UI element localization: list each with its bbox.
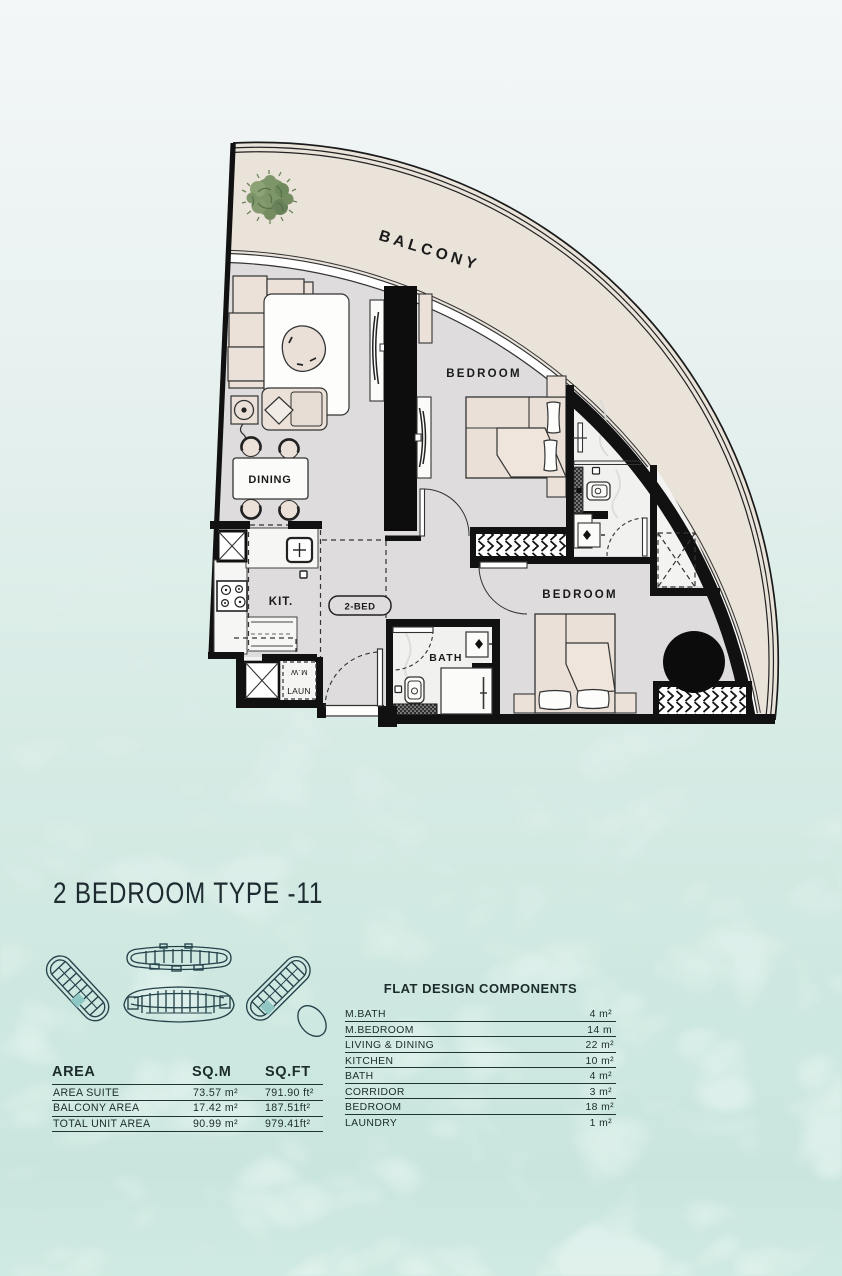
svg-text:LAUN: LAUN [287,686,310,696]
svg-text:M.W: M.W [290,668,307,677]
svg-text:BEDROOM: BEDROOM [446,368,521,380]
svg-text:BEDROOM: BEDROOM [542,589,617,601]
svg-text:DINING: DINING [248,474,291,486]
svg-text:2-BED: 2-BED [344,602,375,613]
svg-text:BATH: BATH [429,652,463,664]
svg-text:KIT.: KIT. [269,596,293,608]
